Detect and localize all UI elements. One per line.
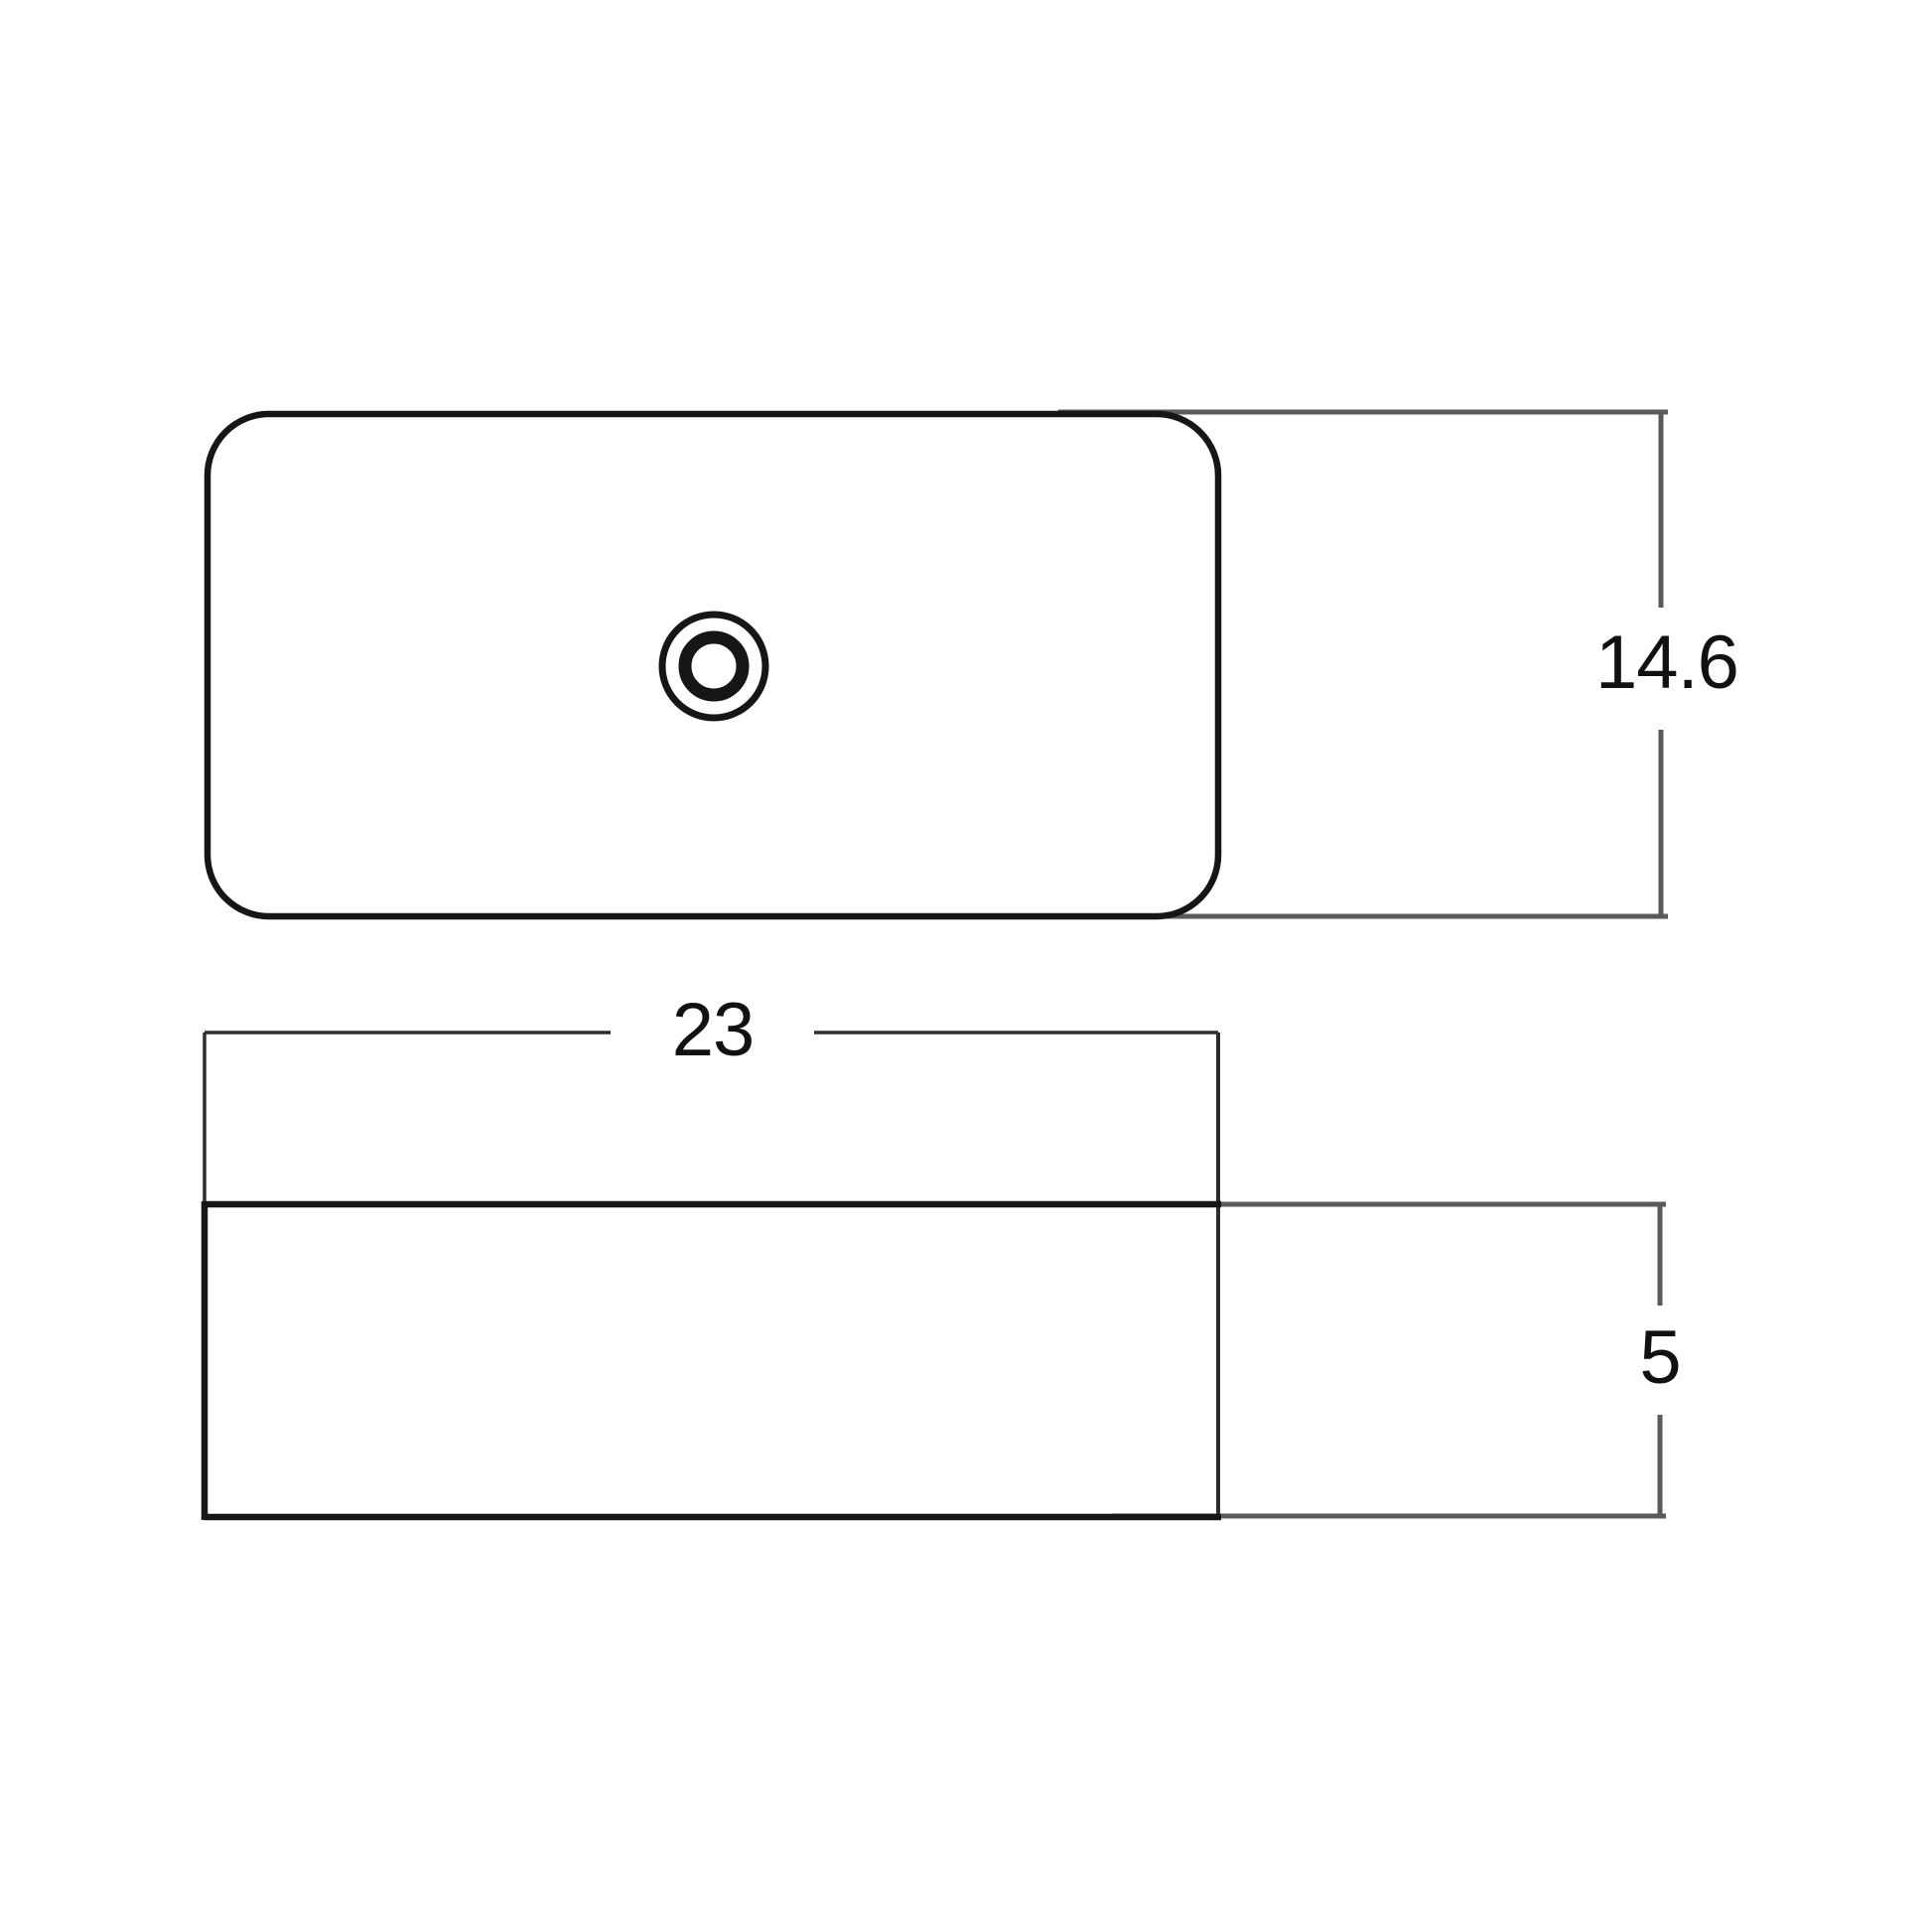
- height-dimension-label: 5: [1639, 1315, 1680, 1400]
- dimension-width: 23: [205, 988, 1218, 1517]
- sink-dimension-diagram: 14.6 5 23: [0, 0, 1932, 1932]
- dimension-height: 5: [1112, 1204, 1681, 1516]
- drain-outer-circle: [662, 615, 765, 718]
- width-dimension-label: 23: [672, 988, 755, 1072]
- depth-dimension-label: 14.6: [1595, 621, 1738, 705]
- front-view: [205, 1201, 1221, 1520]
- dimension-depth: 14.6: [1058, 412, 1738, 916]
- drawing-canvas: 14.6 5 23: [0, 0, 1932, 1932]
- drain-inner-circle: [685, 637, 743, 695]
- top-view: [207, 414, 1218, 916]
- top-view-outline: [207, 414, 1218, 916]
